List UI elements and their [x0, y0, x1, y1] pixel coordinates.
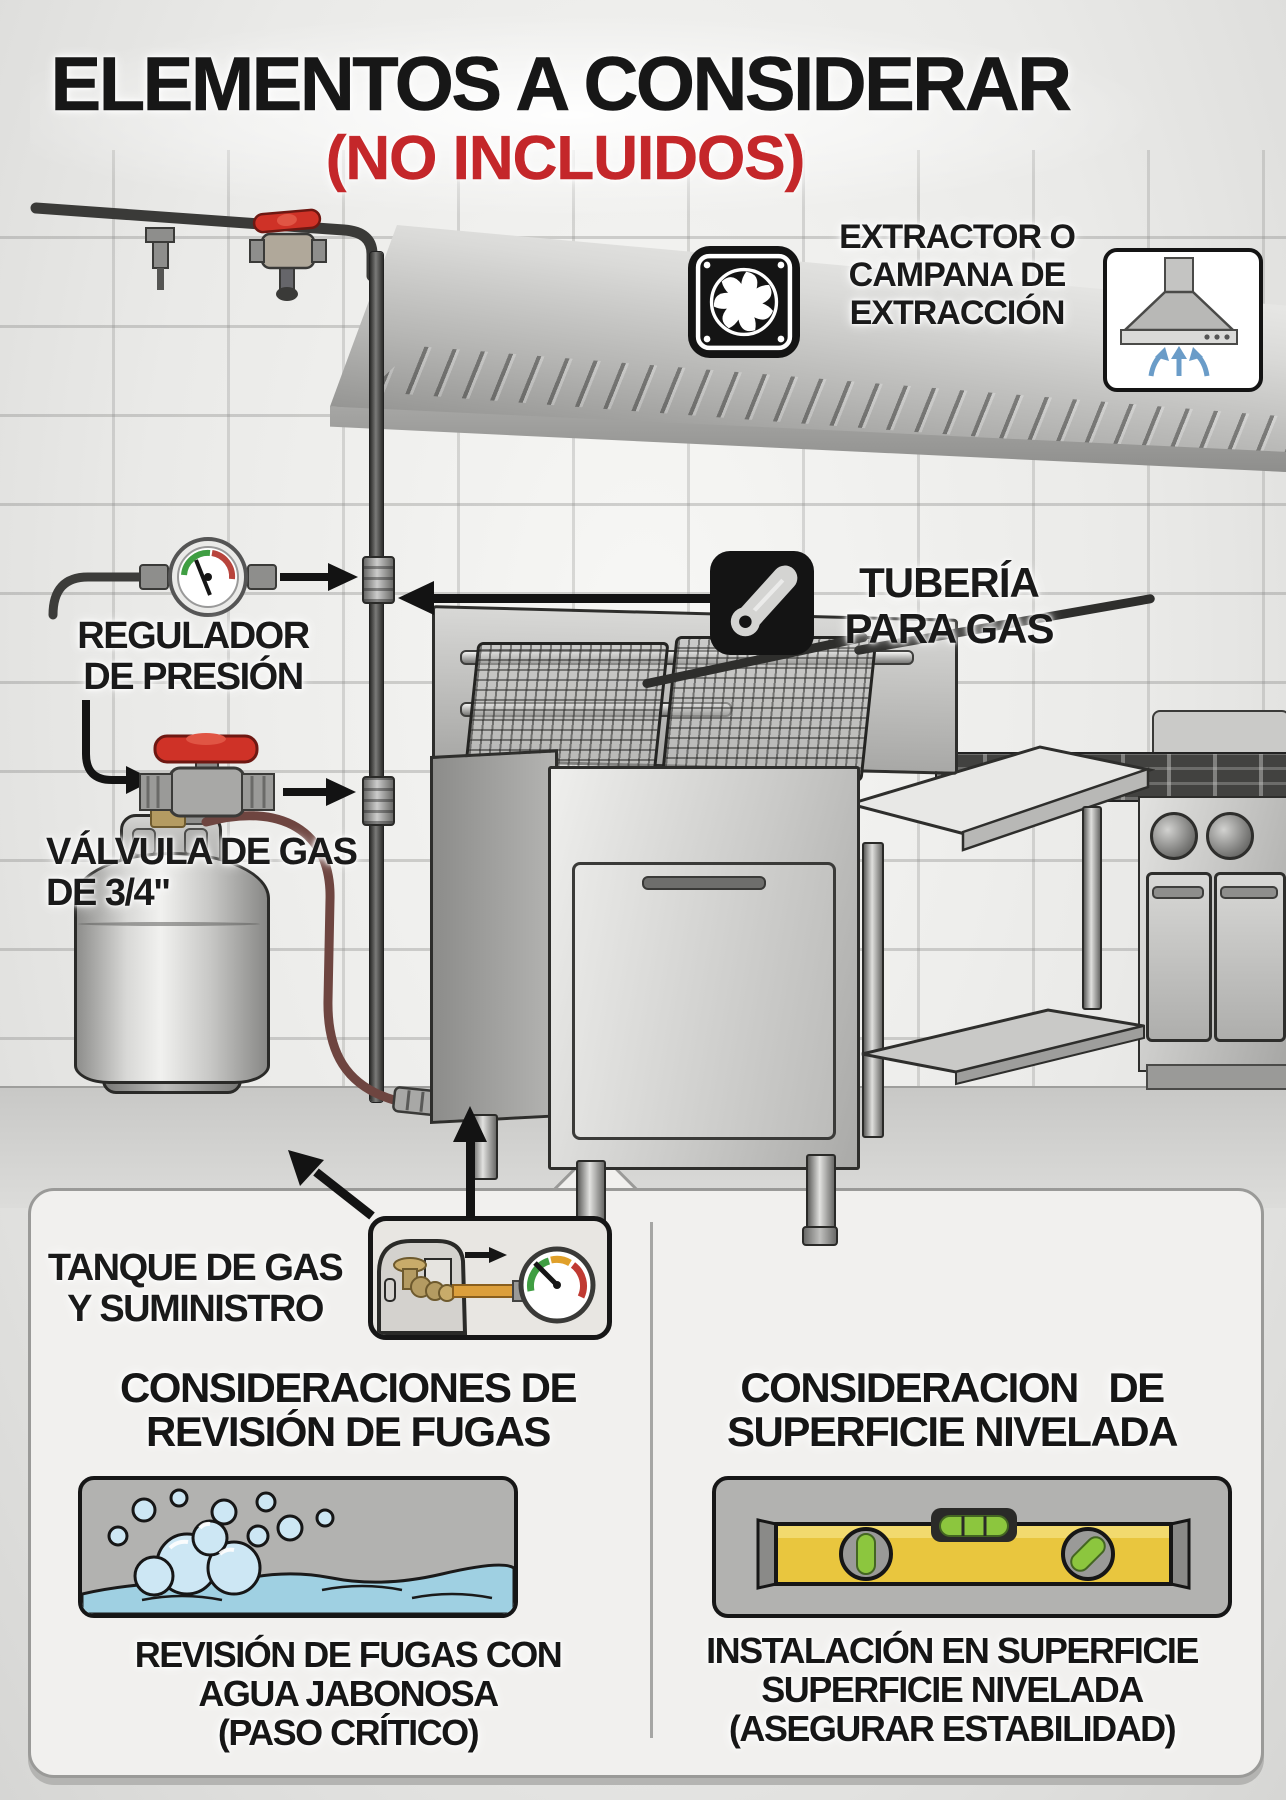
tank-callout-label: TANQUE DE GAS Y SUMINISTRO: [30, 1248, 360, 1330]
oven-door-handle: [1152, 886, 1204, 899]
arrow-line: [430, 594, 712, 603]
valve-callout-label: VÁLVULA DE GAS DE 3/4": [46, 832, 426, 914]
page-subtitle: (NO INCLUIDOS): [0, 126, 1130, 193]
regulator-callout-label: REGULADOR DE PRESIÓN: [58, 616, 328, 698]
leak-check-heading: CONSIDERACIONES DE REVISIÓN DE FUGAS: [60, 1366, 636, 1454]
right-arrow: [489, 1247, 507, 1263]
leak-check-caption: REVISIÓN DE FUGAS CON AGUA JABONOSA (PAS…: [60, 1636, 636, 1753]
extractor-callout-label: EXTRACTOR O CAMPANA DE EXTRACCIÓN: [812, 218, 1102, 332]
oven-door-handle: [1220, 886, 1278, 899]
pipe-icon-tile: [710, 551, 814, 655]
fryer-leg: [806, 1154, 836, 1234]
range-knob: [1150, 812, 1198, 860]
fryer-side-panel: [430, 749, 558, 1124]
table-leg: [1082, 806, 1102, 1010]
hood-icon-box: [1103, 248, 1263, 392]
fryer-foot: [802, 1226, 838, 1246]
spirit-level-icon: [716, 1480, 1228, 1614]
up-arrow: [453, 1106, 487, 1142]
range-kick-plate: [1146, 1064, 1286, 1090]
fryer-door: [572, 862, 836, 1140]
page-title: ELEMENTOS A CONSIDERAR: [0, 44, 1120, 126]
range-knob: [1206, 812, 1254, 860]
card-column-divider: [650, 1222, 653, 1738]
ceiling-gas-pipe: [28, 190, 398, 320]
left-arrow: [398, 581, 434, 615]
fryer-door-handle: [642, 876, 766, 890]
right-arrow: [326, 778, 356, 806]
level-surface-caption: INSTALACIÓN EN SUPERFICIE SUPERFICIE NIV…: [664, 1632, 1240, 1749]
soapy-water-icon: [82, 1480, 514, 1614]
up-left-arrow: [288, 1150, 324, 1186]
shutoff-valve-red-handle: [250, 209, 326, 301]
tank-arrow: [282, 1146, 378, 1222]
table-undershelf: [858, 1006, 1148, 1088]
right-arrow: [328, 563, 358, 591]
spirit-level-image-box: [712, 1476, 1232, 1618]
gas-valve-icon: [118, 726, 368, 826]
infographic-poster: ELEMENTOS A CONSIDERAR (NO INCLUIDOS) EX…: [0, 0, 1286, 1800]
arrow-line: [466, 1140, 475, 1218]
tank-gauge-inset: [368, 1216, 612, 1340]
gas-pipe-callout-label: TUBERÍA PARA GAS: [806, 560, 1092, 652]
fan-icon-tile: [688, 246, 800, 358]
table-leg: [862, 842, 884, 1138]
extraction-hood-icon: [1107, 252, 1251, 380]
level-surface-heading: CONSIDERACION DE SUPERFICIE NIVELADA: [664, 1366, 1240, 1454]
soapy-water-image-box: [78, 1476, 518, 1618]
gas-pipe-icon: [710, 551, 814, 655]
fan-icon: [688, 246, 800, 358]
tank-gauge-inset-icon: [373, 1221, 607, 1335]
